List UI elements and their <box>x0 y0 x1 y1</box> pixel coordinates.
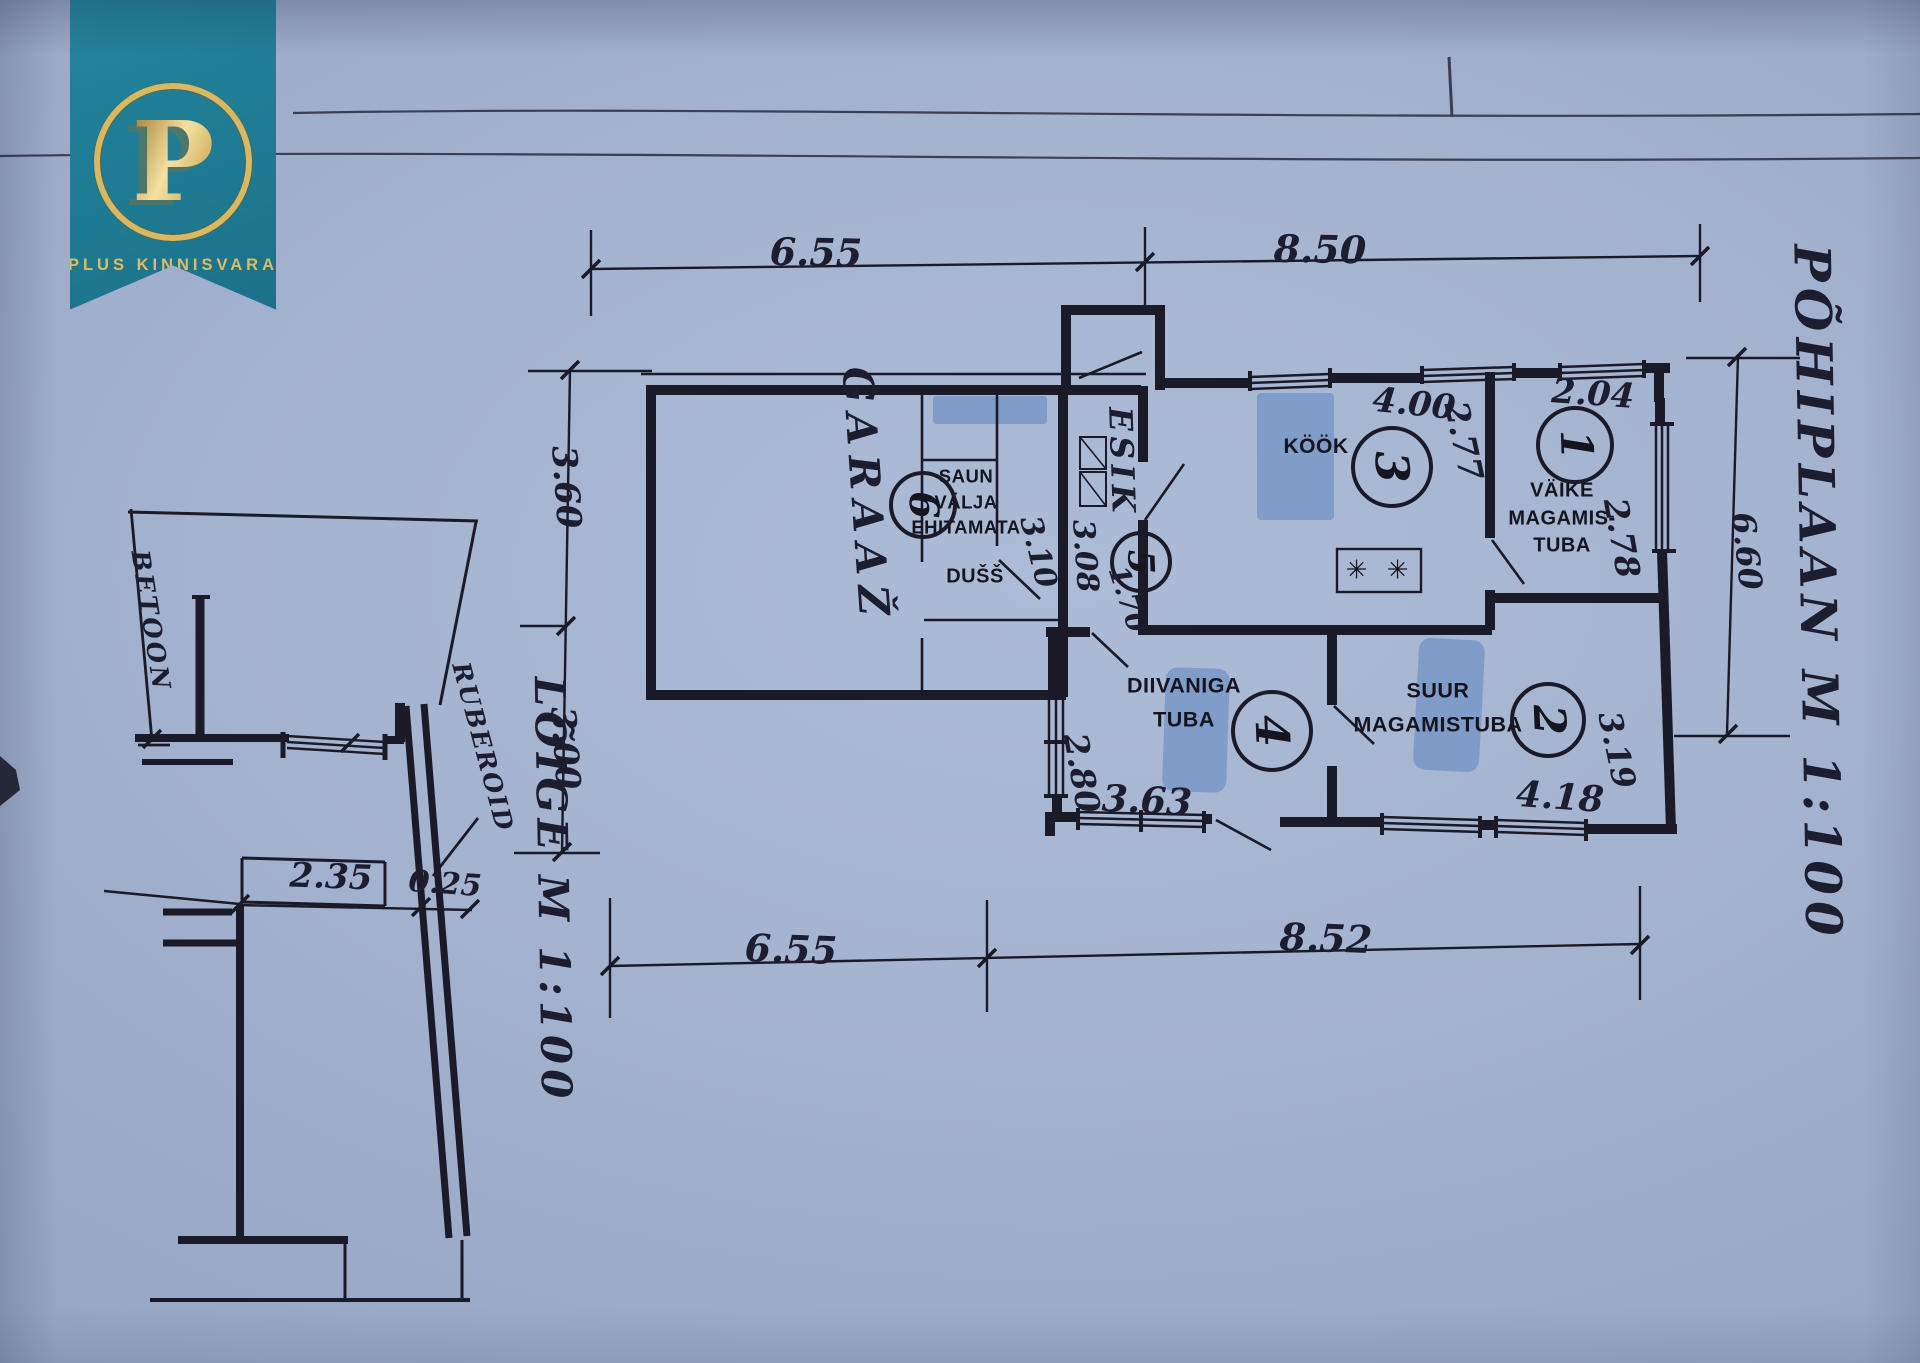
room-number-2: 2 <box>1510 682 1586 758</box>
dim-bottom-right: 8.52 <box>1279 914 1373 962</box>
photo-artifacts <box>0 57 1920 160</box>
room-number-3: 3 <box>1351 426 1433 508</box>
dim-hall-b: 3.08 <box>1065 518 1105 593</box>
photo-edge-mark <box>0 756 20 806</box>
brand-logo-ring: P <box>94 83 252 241</box>
room-number-4: 4 <box>1231 690 1313 772</box>
dim-living-w: 3.63 <box>1101 776 1193 825</box>
blueprint-photo: PÕHIPLAAN M 1:100 LÕIGE M 1:100 GARAAŽ E… <box>0 0 1920 1363</box>
dim-top-right: 8.50 <box>1273 226 1366 273</box>
room-label-shower: DUŠŠ <box>946 566 1004 589</box>
brand-monogram: P <box>132 107 215 217</box>
dim-bed2-w: 4.18 <box>1515 773 1605 821</box>
room-label-big-bedroom: SUUR MAGAMISTUBA <box>1353 674 1522 743</box>
living-line1: DIIVANIGA <box>1127 669 1241 703</box>
small-bedroom-line3: TUBA <box>1508 533 1615 561</box>
dim-bottom-left: 6.55 <box>744 925 838 973</box>
big-bedroom-line1: SUUR <box>1353 674 1522 708</box>
room-number-1: 1 <box>1536 406 1614 484</box>
dim-top-left: 6.55 <box>769 229 862 276</box>
dim-left-upper: 3.60 <box>543 444 589 529</box>
room-label-kitchen: KÖÖK <box>1284 435 1349 459</box>
plan-title: PÕHIPLAAN M 1:100 <box>1782 244 1853 943</box>
floor-plan-drawing <box>0 0 1920 1363</box>
big-bedroom-line2: MAGAMISTUBA <box>1353 708 1522 742</box>
stove-icon: ✳ ✳ <box>1346 555 1415 586</box>
dim-right-side: 6.60 <box>1724 510 1770 591</box>
room-number-6: 6 <box>889 471 957 539</box>
section-dim-wall: 0.25 <box>407 864 482 904</box>
dim-bed1-w: 2.04 <box>1550 371 1635 417</box>
living-line2: TUBA <box>1127 703 1241 737</box>
dim-left-lower: 3.00 <box>542 705 588 790</box>
room-label-living: DIIVANIGA TUBA <box>1127 669 1241 738</box>
section-dim-width: 2.35 <box>289 856 373 899</box>
room-label-hall: ESIK <box>1101 406 1143 518</box>
